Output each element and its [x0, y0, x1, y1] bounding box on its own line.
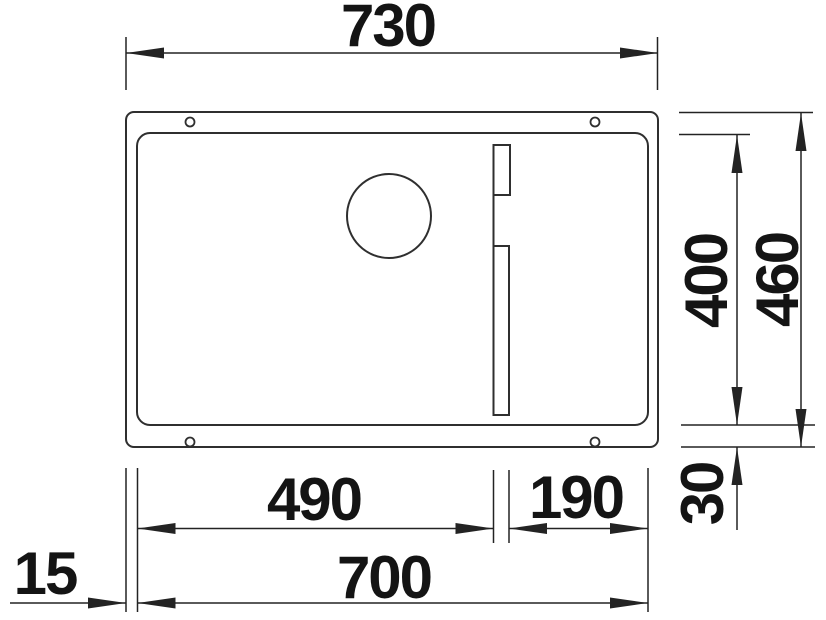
dim-460-label: 460 [744, 233, 811, 327]
dim-30-label: 30 [669, 463, 736, 526]
dimension-labels: 730 400 460 30 490 190 700 15 [14, 0, 811, 611]
technical-drawing: 730 400 460 30 490 190 700 15 [0, 0, 826, 620]
arrowhead-460-down [796, 409, 807, 447]
divider-rail-lower-slot [494, 246, 510, 415]
dim-490-label: 490 [267, 466, 361, 533]
dim-190-label: 190 [529, 464, 623, 531]
arrowhead-15-right [88, 598, 126, 609]
mounting-hole-bottom-right [591, 438, 600, 447]
arrowhead-400-up [732, 135, 743, 173]
sink-geometry [126, 112, 658, 447]
arrowhead-700-right [610, 598, 648, 609]
dim-400-label: 400 [673, 234, 740, 328]
sink-dimension-diagram: 730 400 460 30 490 190 700 15 [0, 0, 826, 620]
mounting-hole-top-left [186, 118, 195, 127]
divider-rail-upper-slot [494, 145, 511, 195]
arrowhead-490-right [456, 523, 494, 534]
dim-700-label: 700 [337, 544, 431, 611]
mounting-hole-bottom-left [186, 438, 195, 447]
sink-outer-outline [126, 112, 658, 447]
arrowhead-400-down [732, 387, 743, 425]
arrowhead-730-right [620, 48, 658, 59]
drain-hole-circle [347, 174, 431, 258]
arrowhead-490-left [138, 523, 176, 534]
dim-730-label: 730 [341, 0, 435, 59]
arrowhead-700-left [138, 598, 176, 609]
mounting-hole-top-right [591, 118, 600, 127]
dim-15-label: 15 [14, 540, 77, 607]
arrowhead-730-left [126, 48, 164, 59]
sink-bowl-outline [137, 133, 648, 425]
arrowhead-460-up [796, 113, 807, 151]
